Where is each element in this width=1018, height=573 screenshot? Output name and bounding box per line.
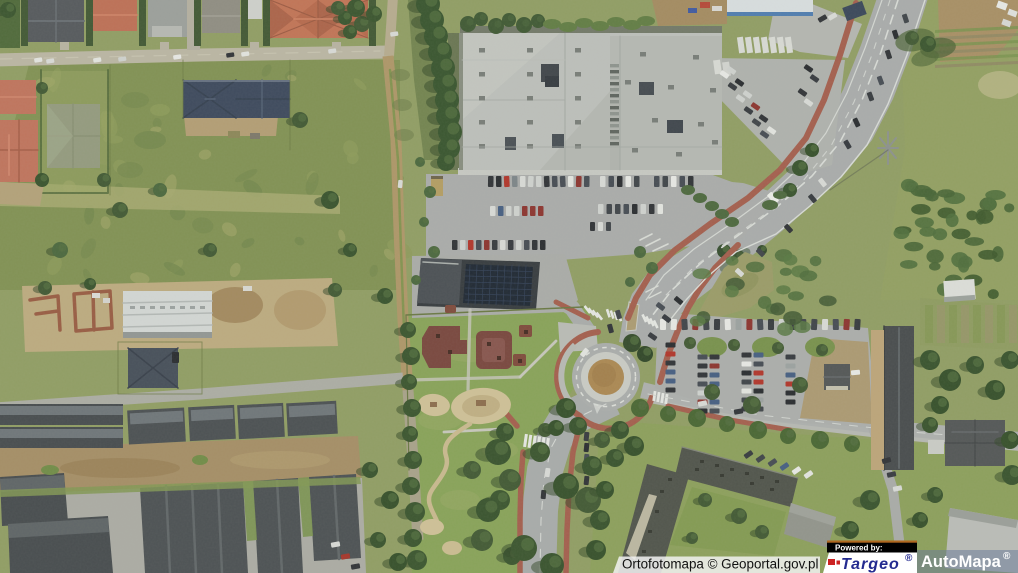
- svg-text:®: ®: [1003, 551, 1011, 562]
- svg-text:®: ®: [905, 553, 913, 564]
- svg-text:Powered by:: Powered by:: [835, 544, 883, 553]
- svg-text:AutoMapa: AutoMapa: [921, 553, 1002, 571]
- svg-text:Targeo: Targeo: [841, 556, 900, 573]
- svg-text:Ortofotomapa © Geoportal.gov.p: Ortofotomapa © Geoportal.gov.pl: [622, 557, 818, 572]
